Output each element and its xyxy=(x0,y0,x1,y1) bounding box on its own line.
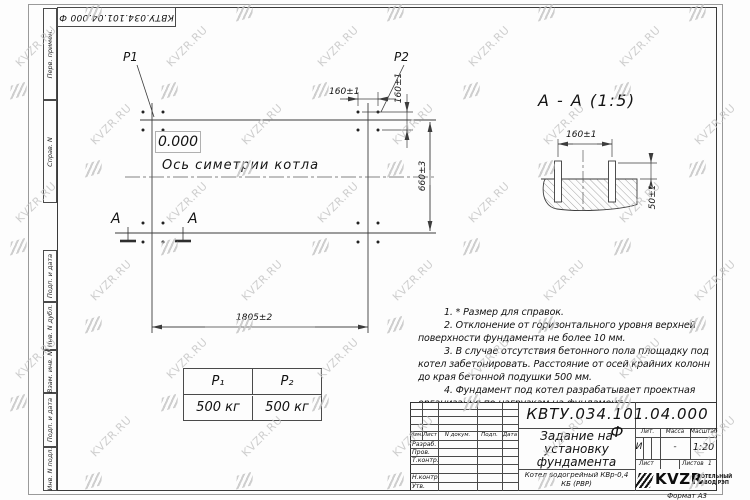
note-2: 2. Отклонение от горизонтального уровня … xyxy=(418,319,719,345)
product-name: Котел водогрейный КВр-0,4 КБ (РВР) xyxy=(520,471,633,488)
col-izm: Изм. xyxy=(410,432,422,438)
frame-column-box: Подп. и дата xyxy=(43,250,57,302)
frame-column-label: Перв. примен. xyxy=(46,30,54,79)
frame-column-label: Справ. N xyxy=(46,137,54,167)
frame-column-box: Инв. N дубл. xyxy=(43,302,57,350)
kvzr-watermark-logo-icon xyxy=(10,393,28,411)
note-1: 1. * Размер для справок. xyxy=(418,306,719,319)
col-podp: Подп. xyxy=(477,432,502,438)
drawing-sheet: Перв. примен. Справ. N Подп. и дата Инв.… xyxy=(0,0,750,500)
scale-value: 1:20 xyxy=(690,442,717,453)
frame-column-box: Взам. инв. N xyxy=(43,350,57,393)
notes-block: 1. * Размер для справок. 2. Отклонение о… xyxy=(418,306,719,410)
frame-column-box: Перв. примен. xyxy=(43,8,57,100)
col-dokum: N докум. xyxy=(438,432,477,438)
drawing-title: Задание на установку фундамента xyxy=(520,430,633,469)
load-point-p2-label: P2 xyxy=(394,50,409,64)
loads-table: P₁ P₂ 500 кг 500 кг xyxy=(183,368,322,421)
sheets-header: Листов xyxy=(682,461,704,467)
dim-length-label: 1805±2 xyxy=(236,313,272,323)
top-stamp-box: КВТУ.034.101.04.000 Ф xyxy=(57,7,176,27)
sig-tkontr: Т.контр. xyxy=(412,457,439,464)
elevation-mark: 0.000 xyxy=(155,131,201,153)
lit-header: Лит. xyxy=(635,429,660,435)
frame-column-label: Инв. N дубл. xyxy=(46,305,54,348)
sig-nkontr: Н.контр. xyxy=(412,474,440,481)
loads-table-header-p1: P₁ xyxy=(184,369,253,395)
loads-table-header-p2: P₂ xyxy=(253,369,321,395)
kvzr-watermark-logo-icon xyxy=(10,237,28,255)
load-point-p1-label: P1 xyxy=(123,50,138,64)
sig-razrab: Разраб. xyxy=(412,441,436,448)
section-view-title: А - А (1:5) xyxy=(538,91,636,110)
col-list: Лист xyxy=(422,432,438,438)
company-name-line2: ЗАВОД РЭП xyxy=(697,481,729,486)
section-mark-letter-right: А xyxy=(188,211,198,227)
loads-table-value-p2: 500 кг xyxy=(253,396,321,420)
loads-table-value-p1: 500 кг xyxy=(184,396,253,420)
dim-bolt-pitch-side-label: 160±1 xyxy=(394,68,404,108)
frame-column-label: Инв. N подл. xyxy=(46,448,54,491)
scale-header: Масштаб xyxy=(690,429,717,435)
frame-column-box: Справ. N xyxy=(43,100,57,203)
frame-column-label: Подп. и дата xyxy=(46,398,54,442)
frame-column-label: Взам. инв. N xyxy=(46,350,54,392)
section-dim-bolt-pitch-label: 160±1 xyxy=(566,130,596,140)
symmetry-axis-label: Ось симетрии котла xyxy=(162,158,319,173)
sheet-header: Лист xyxy=(639,461,654,467)
kvzr-logo-text: KVZR xyxy=(655,470,703,488)
sig-utv: Утв. xyxy=(412,483,425,490)
frame-column-label: Подп. и дата xyxy=(46,254,54,298)
mass-value: - xyxy=(660,442,690,452)
section-mark-letter-left: А xyxy=(111,211,121,227)
note-3: 3. В случае отсутствия бетонного пола пл… xyxy=(418,345,719,384)
kvzr-watermark-logo-icon xyxy=(10,81,28,99)
frame-column-box: Инв. N подл. xyxy=(43,447,57,491)
col-data: Дата xyxy=(502,432,518,438)
top-stamp-text: КВТУ.034.101.04.000 Ф xyxy=(59,12,174,22)
sig-prov: Пров. xyxy=(412,449,430,456)
dim-bolt-pitch-top-label: 160±1 xyxy=(329,87,359,97)
sheets-value: 1 xyxy=(708,461,712,467)
dim-width-label: 660±3 xyxy=(418,156,428,196)
section-dim-bolt-height-label: 50±1 xyxy=(648,177,658,217)
format-note: Формат А3 xyxy=(647,492,727,500)
lit-value: И xyxy=(635,442,643,452)
mass-header: Масса xyxy=(660,429,690,435)
company-name-line1: КОТЕЛЬНЫЙ xyxy=(697,475,732,480)
frame-column-box: Подп. и дата xyxy=(43,393,57,447)
